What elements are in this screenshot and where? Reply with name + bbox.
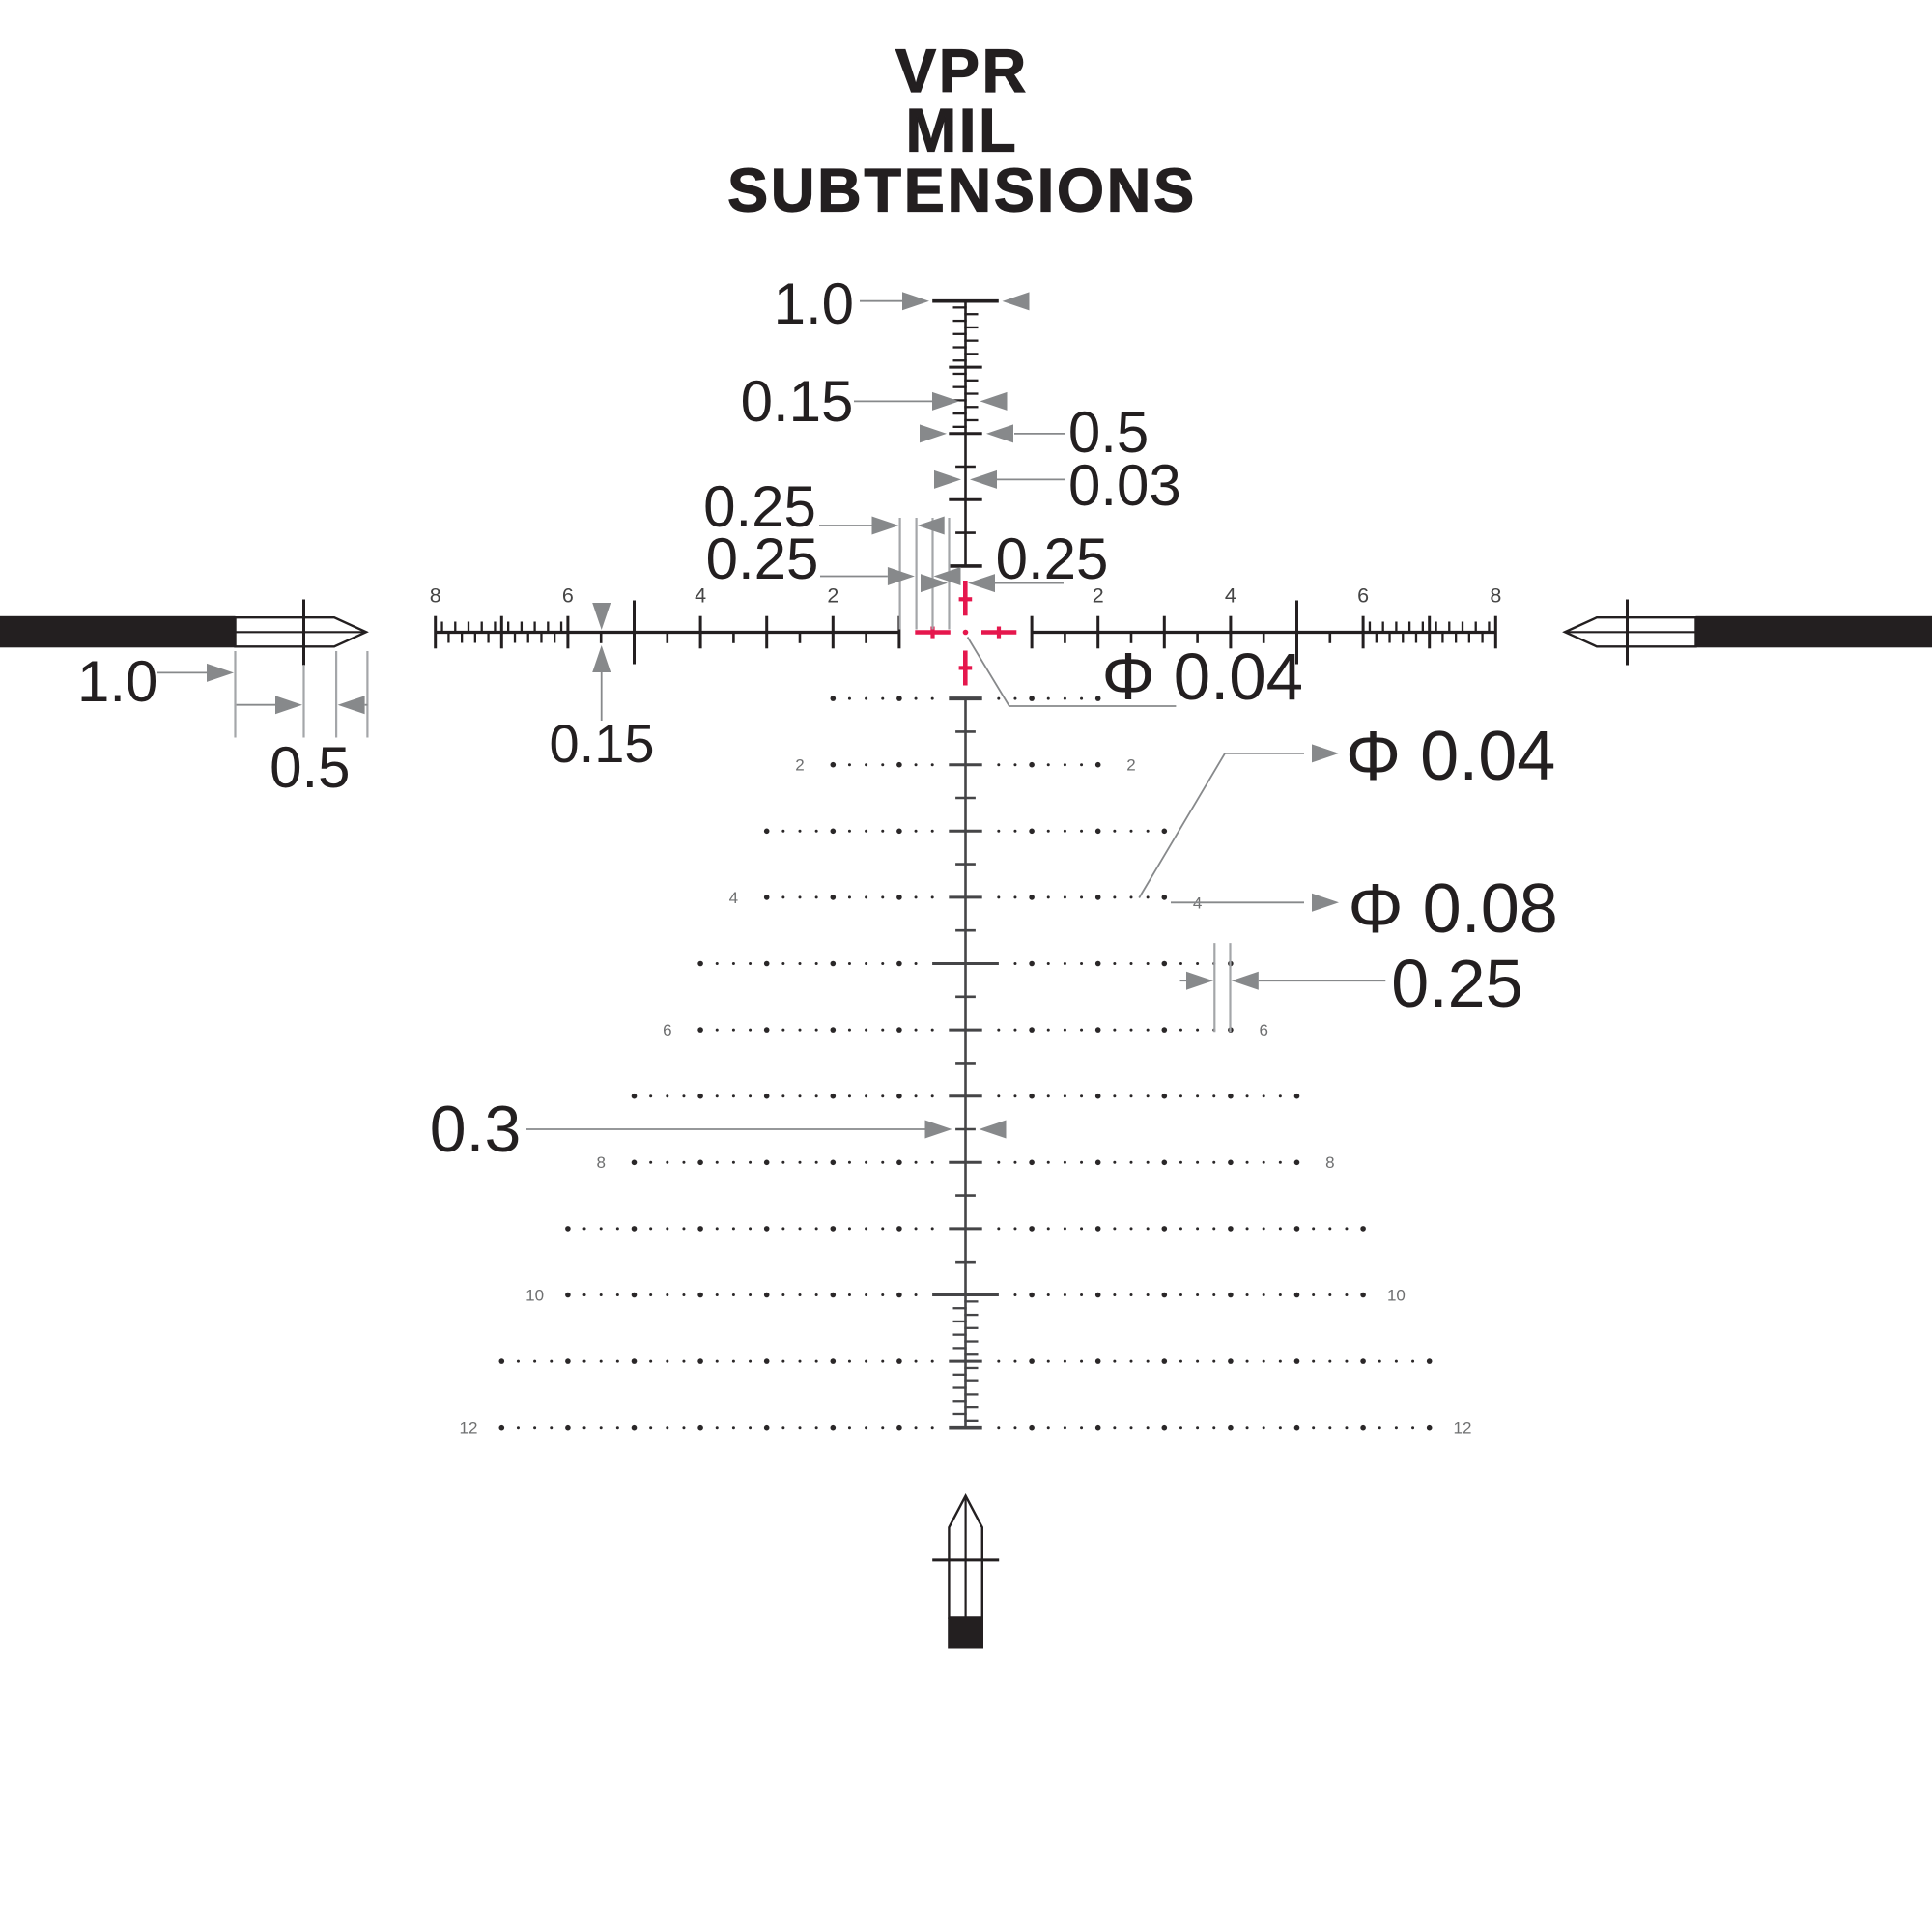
svg-text:0.15: 0.15 (741, 369, 854, 434)
svg-text:8: 8 (596, 1153, 605, 1172)
svg-text:12: 12 (1454, 1419, 1472, 1437)
svg-text:SUBTENSIONS: SUBTENSIONS (727, 157, 1197, 225)
svg-text:1.0: 1.0 (774, 271, 854, 336)
svg-text:2: 2 (827, 584, 838, 608)
svg-text:12: 12 (460, 1419, 478, 1437)
svg-text:6: 6 (1357, 584, 1369, 608)
svg-text:Φ 0.04: Φ 0.04 (1102, 639, 1304, 714)
svg-text:10: 10 (526, 1286, 544, 1304)
svg-text:0.15: 0.15 (550, 713, 655, 774)
svg-text:1.0: 1.0 (77, 649, 157, 714)
svg-text:2: 2 (795, 756, 804, 775)
svg-text:0.03: 0.03 (1068, 453, 1181, 518)
svg-text:4: 4 (729, 889, 738, 907)
svg-text:Φ 0.04: Φ 0.04 (1346, 718, 1556, 795)
svg-text:0.25: 0.25 (996, 526, 1109, 591)
svg-text:VPR: VPR (895, 38, 1029, 105)
svg-text:8: 8 (1490, 584, 1501, 608)
svg-text:Φ 0.08: Φ 0.08 (1348, 870, 1558, 948)
svg-text:4: 4 (695, 584, 706, 608)
svg-text:0.3: 0.3 (430, 1093, 522, 1166)
svg-text:4: 4 (1225, 584, 1236, 608)
svg-text:0.25: 0.25 (1391, 946, 1522, 1021)
svg-text:6: 6 (663, 1021, 671, 1039)
svg-text:2: 2 (1126, 756, 1135, 775)
svg-text:MIL: MIL (906, 98, 1019, 165)
svg-text:8: 8 (430, 584, 441, 608)
svg-text:6: 6 (1259, 1021, 1267, 1039)
svg-text:4: 4 (1193, 895, 1202, 913)
svg-text:0.25: 0.25 (706, 526, 819, 591)
svg-text:6: 6 (562, 584, 574, 608)
svg-text:10: 10 (1387, 1286, 1406, 1304)
svg-text:0.5: 0.5 (270, 735, 350, 800)
svg-text:8: 8 (1325, 1153, 1334, 1172)
